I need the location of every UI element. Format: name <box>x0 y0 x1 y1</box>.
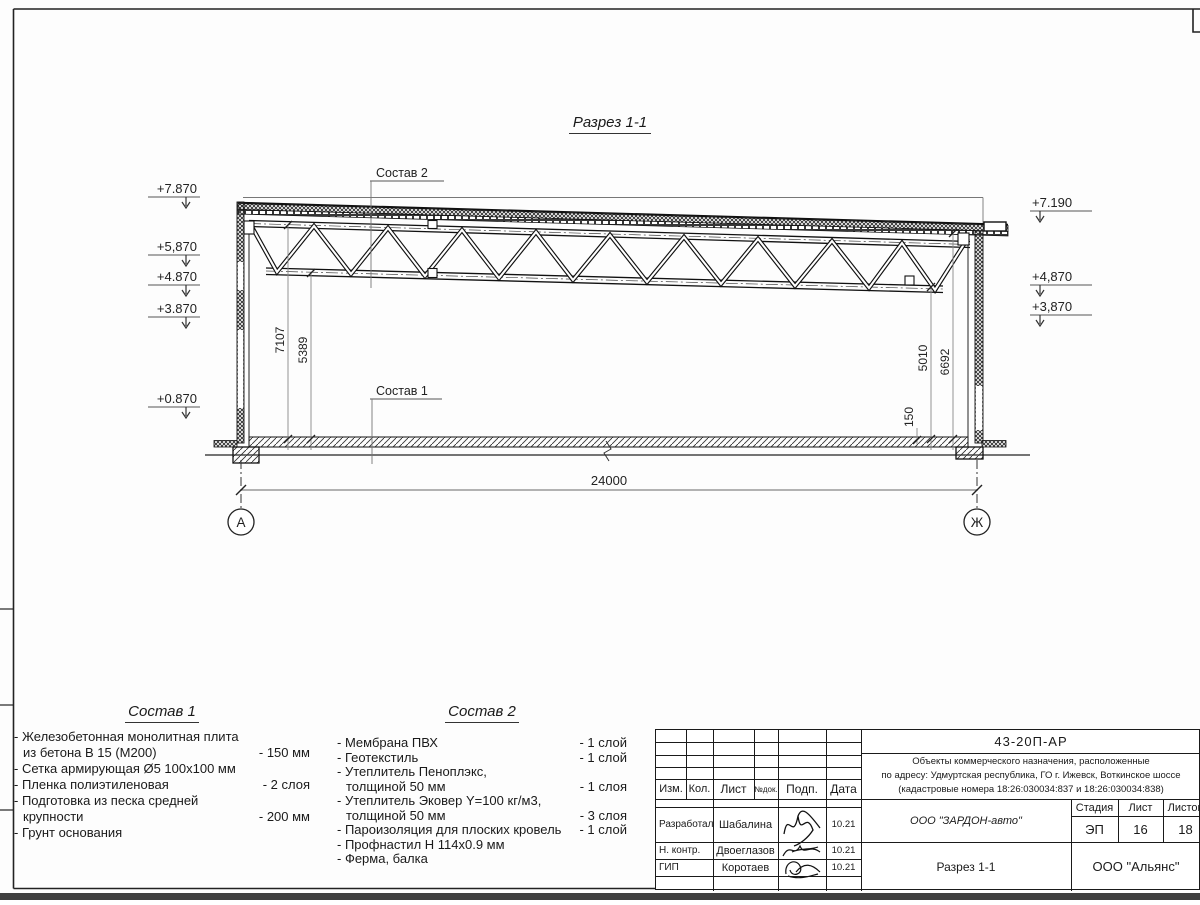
column-right <box>958 231 983 443</box>
material-row: - Геотекстиль- 1 слой <box>337 751 627 766</box>
callout-comp1: Состав 1 <box>370 384 442 464</box>
composition-1-title: Состав 1 <box>14 703 310 723</box>
title-block: Изм. Кол. Лист №док. Подп. Дата Разработ… <box>655 729 1200 890</box>
name-ncontrol: Двоеглазов <box>713 842 778 859</box>
composition-2-list: Состав 2 - Мембрана ПВХ- 1 слой - Геотек… <box>337 703 627 867</box>
composition-1-list: Состав 1 - Железобетонная монолитная пли… <box>14 703 310 841</box>
floor-slab <box>205 437 1030 463</box>
svg-text:А: А <box>236 515 245 530</box>
material-row: - Профнастил Н 114х0.9 мм <box>337 838 627 853</box>
role-gip: ГИП <box>656 859 716 876</box>
col-header-podp: Подп. <box>778 779 826 799</box>
svg-text:+3,870: +3,870 <box>1032 299 1072 314</box>
col-header-data: Дата <box>826 779 861 799</box>
col-header-list: Лист <box>713 779 754 799</box>
client-company: ООО "ЗАРДОН-авто" <box>861 799 1071 842</box>
material-row: - Ферма, балка <box>337 852 627 867</box>
material-row: - Пароизоляция для плоских кровель- 1 сл… <box>337 823 627 838</box>
svg-text:+5,870: +5,870 <box>157 239 197 254</box>
svg-text:Состав 1: Состав 1 <box>376 384 428 398</box>
material-row: крупности- 200 мм <box>14 809 310 825</box>
material-row: - Грунт основания <box>14 825 310 841</box>
elevation-marks-right: +7.190 +4,870 +3,870 <box>1030 195 1092 326</box>
material-row: - Железобетонная монолитная плита <box>14 729 310 745</box>
design-org: ООО "Альянс" <box>1071 842 1200 891</box>
drawing-sheet: Состав 2 Состав 1 +7.870 +5,870 +4.870 +… <box>0 0 1200 900</box>
material-row: - Мембрана ПВХ- 1 слой <box>337 736 627 751</box>
fold-marks <box>0 609 14 810</box>
material-row: - Сетка армирующая Ø5 100x100 мм <box>14 761 310 777</box>
sheets-value: 18 <box>1163 816 1200 842</box>
vertical-dimensions: 7107 5389 5010 6692 150 <box>273 221 957 450</box>
stage-value: ЭП <box>1071 816 1118 842</box>
footing-right <box>956 447 983 459</box>
roof-end-detail <box>984 222 1006 231</box>
material-row: - Утеплитель Пеноплэкс, <box>337 765 627 780</box>
material-row: - Подготовка из песка средней <box>14 793 310 809</box>
composition-2-title: Состав 2 <box>337 703 627 723</box>
material-row: - Пленка полиэтиленовая- 2 слоя <box>14 777 310 793</box>
drawing-name-cell: Разрез 1-1 <box>861 842 1071 891</box>
project-description-line2: по адресу: Удмуртская республика, ГО г. … <box>881 769 1180 783</box>
svg-text:5010: 5010 <box>916 344 930 371</box>
svg-text:+7.870: +7.870 <box>157 181 197 196</box>
material-row: - Утеплитель Эковер Y=100 кг/м3, <box>337 794 627 809</box>
column-left <box>237 202 254 443</box>
sheet-header: Лист <box>1118 799 1163 816</box>
col-header-izm: Изм. <box>656 779 686 799</box>
svg-text:150: 150 <box>902 407 916 427</box>
date-gip: 10.21 <box>826 859 861 876</box>
name-gip: Коротаев <box>713 859 778 876</box>
svg-text:+4.870: +4.870 <box>157 269 197 284</box>
svg-text:Ж: Ж <box>971 515 984 530</box>
svg-text:+3.870: +3.870 <box>157 301 197 316</box>
col-header-ndok: №док. <box>754 779 778 799</box>
svg-text:5389: 5389 <box>296 336 310 363</box>
stage-header: Стадия <box>1071 799 1118 816</box>
date-developer: 10.21 <box>826 807 861 842</box>
project-description: Объекты коммерческого назначения, распол… <box>861 753 1200 799</box>
svg-text:24000: 24000 <box>591 473 627 488</box>
span-dimension: 24000 <box>236 460 982 509</box>
material-row: толщиной 50 мм- 1 слоя <box>337 780 627 795</box>
ledge-left <box>214 441 237 448</box>
drawing-title: Разрез 1-1 <box>520 114 700 134</box>
project-description-line3: (кадастровые номера 18:26:030034:837 и 1… <box>898 783 1164 797</box>
axis-bubble-left: А <box>228 509 254 535</box>
sheets-header: Листов <box>1163 799 1200 816</box>
footing-left <box>233 447 259 463</box>
project-description-line1: Объекты коммерческого назначения, распол… <box>912 755 1149 769</box>
svg-text:+7.190: +7.190 <box>1032 195 1072 210</box>
material-row: толщиной 50 мм- 3 слоя <box>337 809 627 824</box>
col-header-kol: Кол. <box>686 779 713 799</box>
scan-edge <box>0 893 1200 900</box>
document-number: 43-20П-АР <box>861 730 1200 753</box>
sheet-value: 16 <box>1118 816 1163 842</box>
role-ncontrol: Н. контр. <box>656 842 716 859</box>
elevation-marks-left: +7.870 +5,870 +4.870 +3.870 +0.870 <box>148 181 200 418</box>
svg-text:+4,870: +4,870 <box>1032 269 1072 284</box>
axis-bubble-right: Ж <box>964 509 990 535</box>
svg-text:6692: 6692 <box>938 348 952 375</box>
svg-text:+0.870: +0.870 <box>157 391 197 406</box>
name-developer: Шабалина <box>713 807 778 842</box>
svg-text:Состав 2: Состав 2 <box>376 166 428 180</box>
material-row: из бетона В 15 (М200)- 150 мм <box>14 745 310 761</box>
role-developer: Разработал <box>656 807 716 842</box>
ledge-right <box>982 441 1006 448</box>
signature-gip <box>778 854 826 880</box>
svg-text:7107: 7107 <box>273 326 287 353</box>
date-ncontrol: 10.21 <box>826 842 861 859</box>
